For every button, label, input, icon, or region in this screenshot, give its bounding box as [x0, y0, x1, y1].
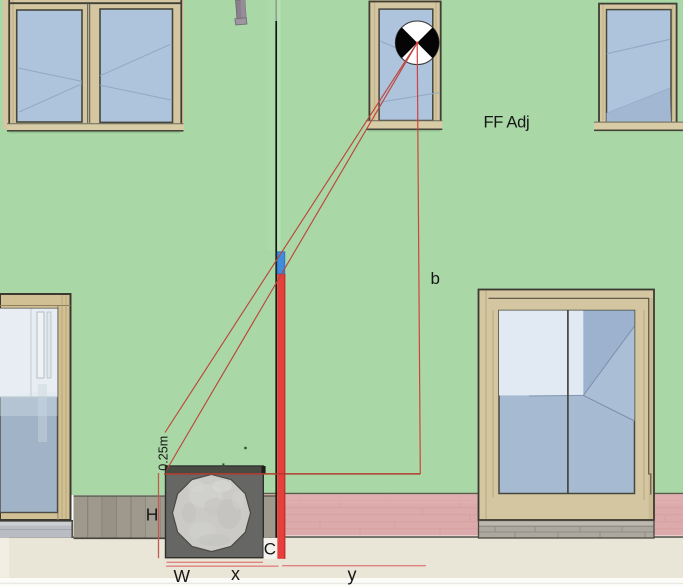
svg-text:C: C [264, 540, 276, 559]
svg-text:y: y [348, 565, 357, 585]
svg-text:W: W [174, 566, 191, 586]
svg-text:x: x [231, 564, 240, 584]
svg-text:FF Adj: FF Adj [484, 114, 530, 132]
svg-text:H: H [146, 505, 159, 525]
svg-text:0.25m: 0.25m [157, 436, 171, 471]
svg-text:b: b [431, 269, 440, 288]
